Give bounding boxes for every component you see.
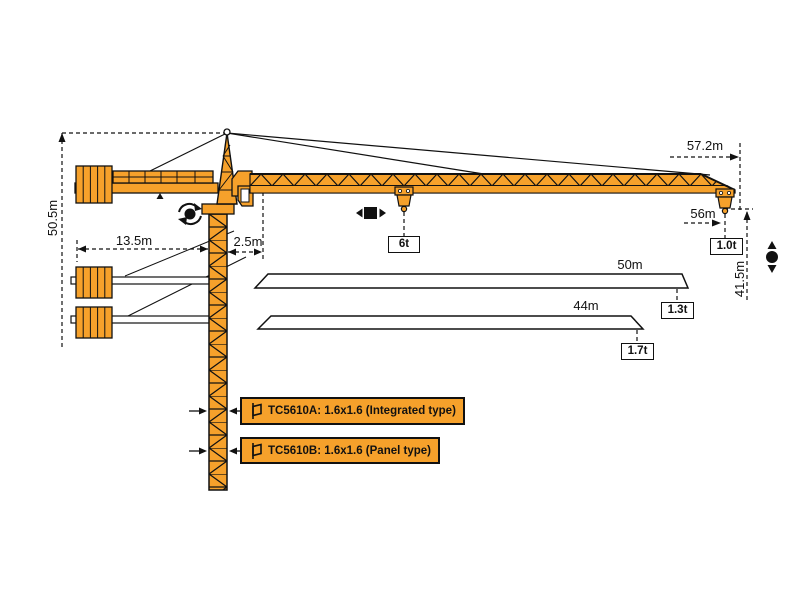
trolley-mid (395, 187, 413, 212)
load-mid-span-box: 6t (388, 236, 420, 253)
mast-section-icon (249, 402, 263, 420)
crane-diagram-art (0, 0, 800, 600)
jib-44m-outline (258, 316, 643, 329)
apex-pin (224, 129, 230, 135)
slewing-base (202, 204, 234, 214)
model-b-label: TC5610B: 1.6x1.6 (Panel type) (268, 445, 431, 457)
model-a-box: TC5610A: 1.6x1.6 (Integrated type) (240, 397, 465, 425)
load-tip-44m-box: 1.7t (621, 343, 654, 360)
jib-56-radius-label: 56m (688, 207, 718, 221)
jib-variant-outlines (255, 274, 688, 329)
crane-diagram-canvas: 50.5m 13.5m 2.5m 57.2m 56m 41.5m 50m 44m… (0, 0, 800, 600)
counter-jib (75, 166, 218, 203)
under-hook-height-label: 41.5m (733, 257, 747, 301)
counterweight-row-1 (71, 267, 212, 298)
min-radius-label: 2.5m (230, 235, 266, 249)
tie-bars (150, 133, 710, 175)
max-radius-label: 57.2m (682, 139, 728, 153)
cab-window (241, 189, 249, 202)
jib-44m-length-label: 44m (568, 299, 604, 313)
counterjib-marker-triangle (157, 193, 164, 199)
model-b-box: TC5610B: 1.6x1.6 (Panel type) (240, 437, 440, 464)
slewing-icon (178, 203, 202, 225)
load-tip-56m-box: 1.0t (710, 238, 743, 255)
counterweight-row-2 (71, 307, 212, 338)
mast-section-icon (249, 442, 263, 460)
jib (250, 174, 735, 193)
model-a-label: TC5610A: 1.6x1.6 (Integrated type) (268, 405, 456, 417)
trolley-tip (716, 189, 734, 214)
hook-mid (401, 206, 406, 211)
jib-50m-length-label: 50m (612, 258, 648, 272)
trolley-travel-icon (356, 207, 386, 219)
load-tip-50m-box: 1.3t (661, 302, 694, 319)
counterjib-length-label: 13.5m (112, 234, 156, 248)
jib-50m-outline (255, 274, 688, 288)
hook-tip (722, 208, 727, 213)
overall-height-label: 50.5m (46, 196, 60, 240)
hoisting-icon (766, 241, 778, 273)
